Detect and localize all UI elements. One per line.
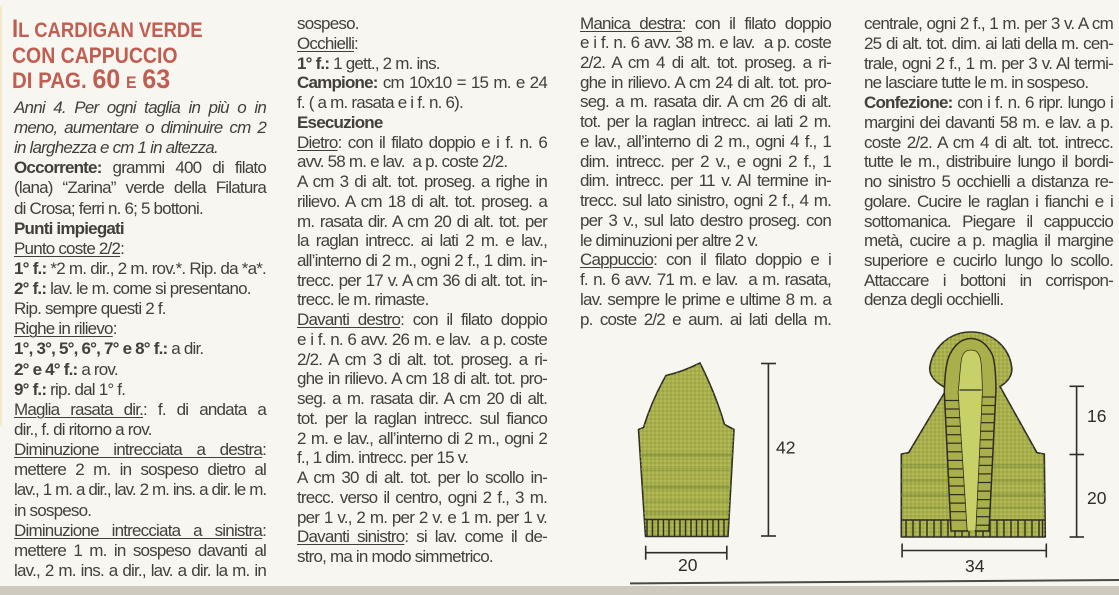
svg-text:16: 16 — [1087, 406, 1106, 426]
svg-text:20: 20 — [1087, 488, 1107, 508]
svg-text:42: 42 — [776, 438, 795, 458]
svg-text:20: 20 — [678, 555, 698, 575]
svg-text:34: 34 — [965, 556, 985, 576]
